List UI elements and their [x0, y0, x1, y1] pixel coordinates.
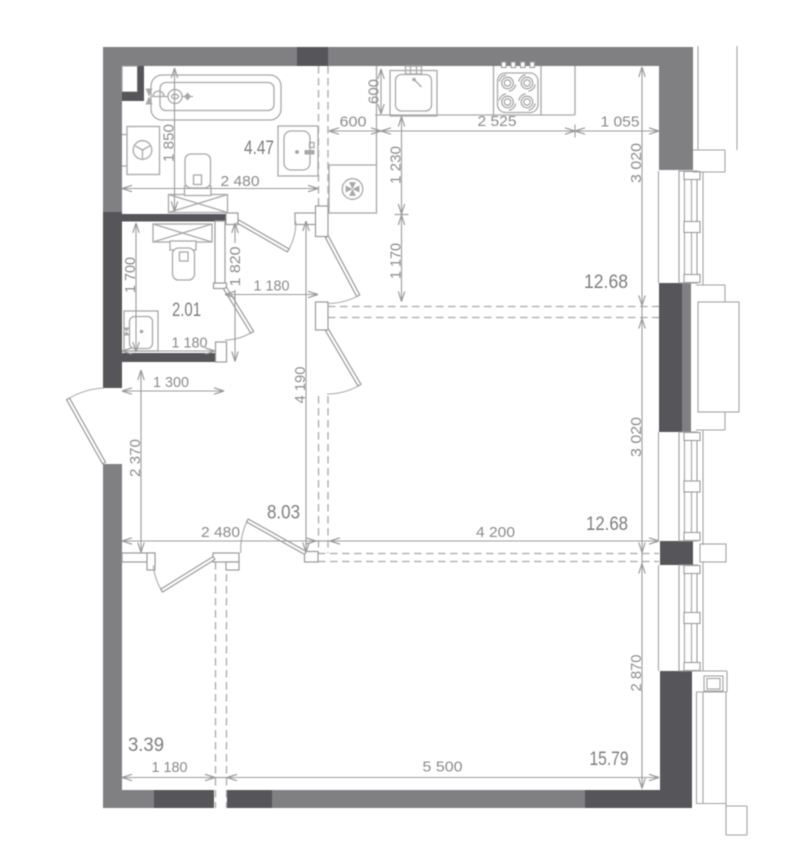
svg-text:1 180: 1 180 [152, 759, 188, 776]
svg-text:1 700: 1 700 [122, 257, 139, 293]
svg-text:1 180: 1 180 [172, 335, 208, 352]
svg-text:600: 600 [366, 79, 383, 104]
svg-text:2 480: 2 480 [221, 173, 260, 190]
svg-text:12.68: 12.68 [584, 272, 628, 293]
svg-text:1 300: 1 300 [153, 374, 189, 391]
svg-text:1 055: 1 055 [601, 114, 640, 131]
svg-text:4 190: 4 190 [292, 367, 309, 404]
svg-text:2 870: 2 870 [628, 655, 645, 692]
svg-text:3 020: 3 020 [628, 143, 645, 183]
svg-text:1 850: 1 850 [161, 124, 178, 162]
svg-text:1 230: 1 230 [388, 146, 405, 184]
svg-text:2 480: 2 480 [201, 524, 240, 541]
svg-text:3.39: 3.39 [128, 735, 164, 756]
svg-text:600: 600 [340, 114, 367, 131]
svg-text:3 020: 3 020 [628, 417, 645, 457]
svg-text:1 170: 1 170 [388, 243, 405, 279]
svg-text:5 500: 5 500 [423, 759, 463, 776]
svg-text:1 820: 1 820 [227, 247, 244, 287]
svg-text:2.01: 2.01 [172, 300, 201, 321]
svg-text:4.47: 4.47 [244, 138, 274, 159]
svg-text:2 525: 2 525 [478, 113, 517, 130]
svg-text:1 180: 1 180 [254, 278, 290, 295]
svg-text:8.03: 8.03 [267, 503, 300, 524]
svg-text:12.68: 12.68 [586, 514, 628, 535]
svg-text:15.79: 15.79 [590, 749, 629, 770]
svg-text:4 200: 4 200 [476, 524, 515, 541]
svg-text:2 370: 2 370 [127, 439, 144, 477]
